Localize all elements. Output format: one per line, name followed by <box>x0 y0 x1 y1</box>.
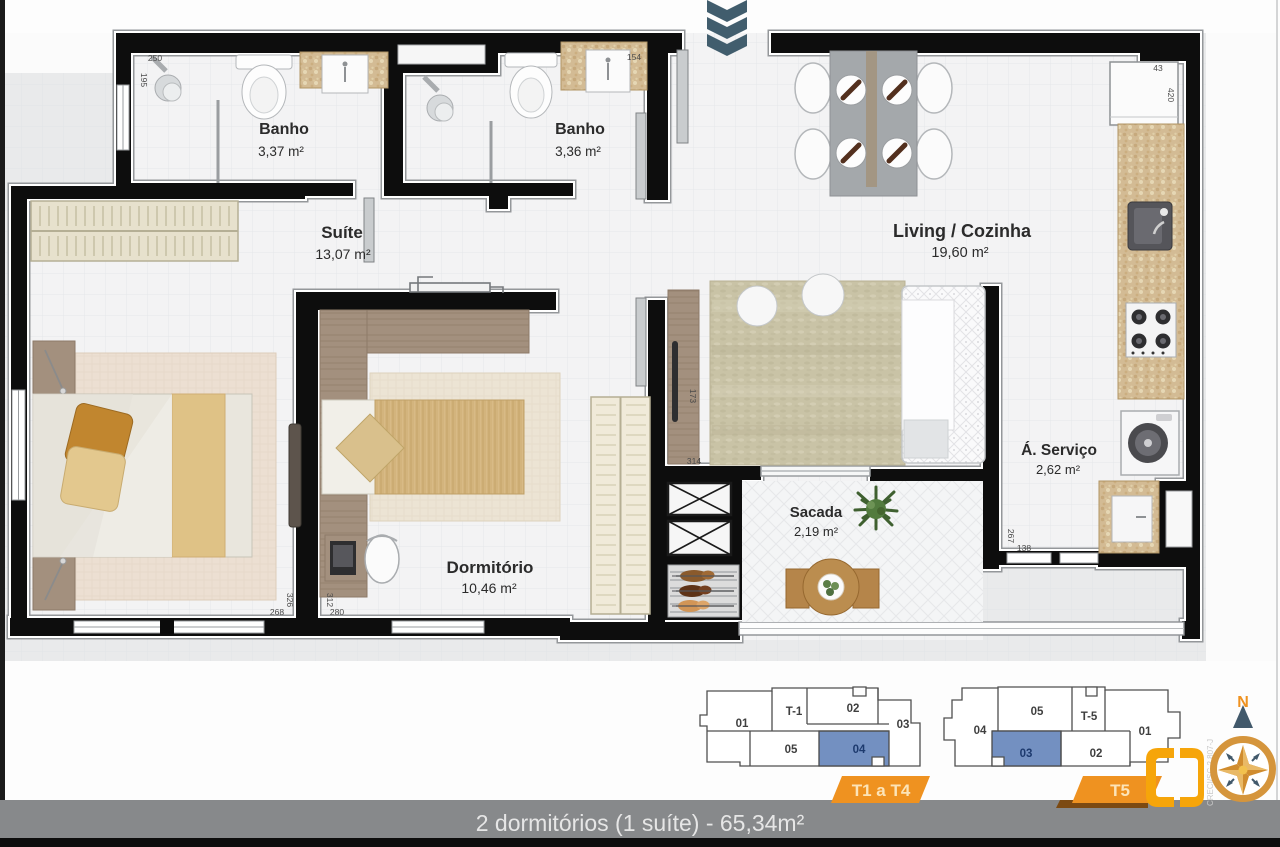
svg-text:3,36 m²: 3,36 m² <box>555 144 601 159</box>
svg-text:Banho: Banho <box>555 121 605 138</box>
svg-text:02: 02 <box>1090 748 1103 760</box>
svg-text:154: 154 <box>627 52 641 62</box>
svg-text:138: 138 <box>1017 543 1031 553</box>
svg-text:04: 04 <box>974 725 987 737</box>
svg-text:268: 268 <box>270 607 284 617</box>
svg-text:Banho: Banho <box>259 121 309 138</box>
svg-text:03: 03 <box>1020 748 1033 760</box>
svg-text:13,07 m²: 13,07 m² <box>315 246 371 262</box>
svg-text:05: 05 <box>1031 706 1044 718</box>
svg-text:267: 267 <box>1006 529 1016 543</box>
svg-text:314: 314 <box>687 456 701 466</box>
svg-text:19,60 m²: 19,60 m² <box>931 245 988 261</box>
svg-text:173: 173 <box>688 389 698 403</box>
svg-text:420: 420 <box>1166 88 1176 102</box>
svg-text:05: 05 <box>785 744 798 756</box>
svg-text:T5: T5 <box>1110 781 1130 800</box>
svg-text:Á. Serviço: Á. Serviço <box>1021 442 1097 459</box>
svg-text:02: 02 <box>847 703 860 715</box>
svg-text:Suíte: Suíte <box>321 223 363 242</box>
svg-text:2,19 m²: 2,19 m² <box>794 524 839 539</box>
svg-text:312: 312 <box>325 593 335 607</box>
svg-text:04: 04 <box>853 744 866 756</box>
svg-text:03: 03 <box>897 719 910 731</box>
svg-text:280: 280 <box>330 607 344 617</box>
svg-text:195: 195 <box>139 73 149 87</box>
svg-text:2,62 m²: 2,62 m² <box>1036 462 1081 477</box>
svg-text:Dormitório: Dormitório <box>447 558 534 577</box>
svg-text:T-5: T-5 <box>1081 711 1098 723</box>
svg-text:01: 01 <box>736 718 749 730</box>
svg-text:T1 a T4: T1 a T4 <box>852 781 911 800</box>
svg-text:2 dormitórios (1 suíte) - 65,3: 2 dormitórios (1 suíte) - 65,34m² <box>476 810 805 836</box>
svg-text:01: 01 <box>1139 726 1152 738</box>
svg-text:43: 43 <box>1153 63 1163 73</box>
svg-text:Living / Cozinha: Living / Cozinha <box>893 221 1032 241</box>
svg-text:3,37 m²: 3,37 m² <box>258 144 304 159</box>
svg-text:10,46 m²: 10,46 m² <box>461 580 517 596</box>
svg-text:T-1: T-1 <box>786 706 803 718</box>
svg-text:Sacada: Sacada <box>790 504 843 521</box>
svg-text:250: 250 <box>148 53 162 63</box>
svg-text:326: 326 <box>285 593 295 607</box>
